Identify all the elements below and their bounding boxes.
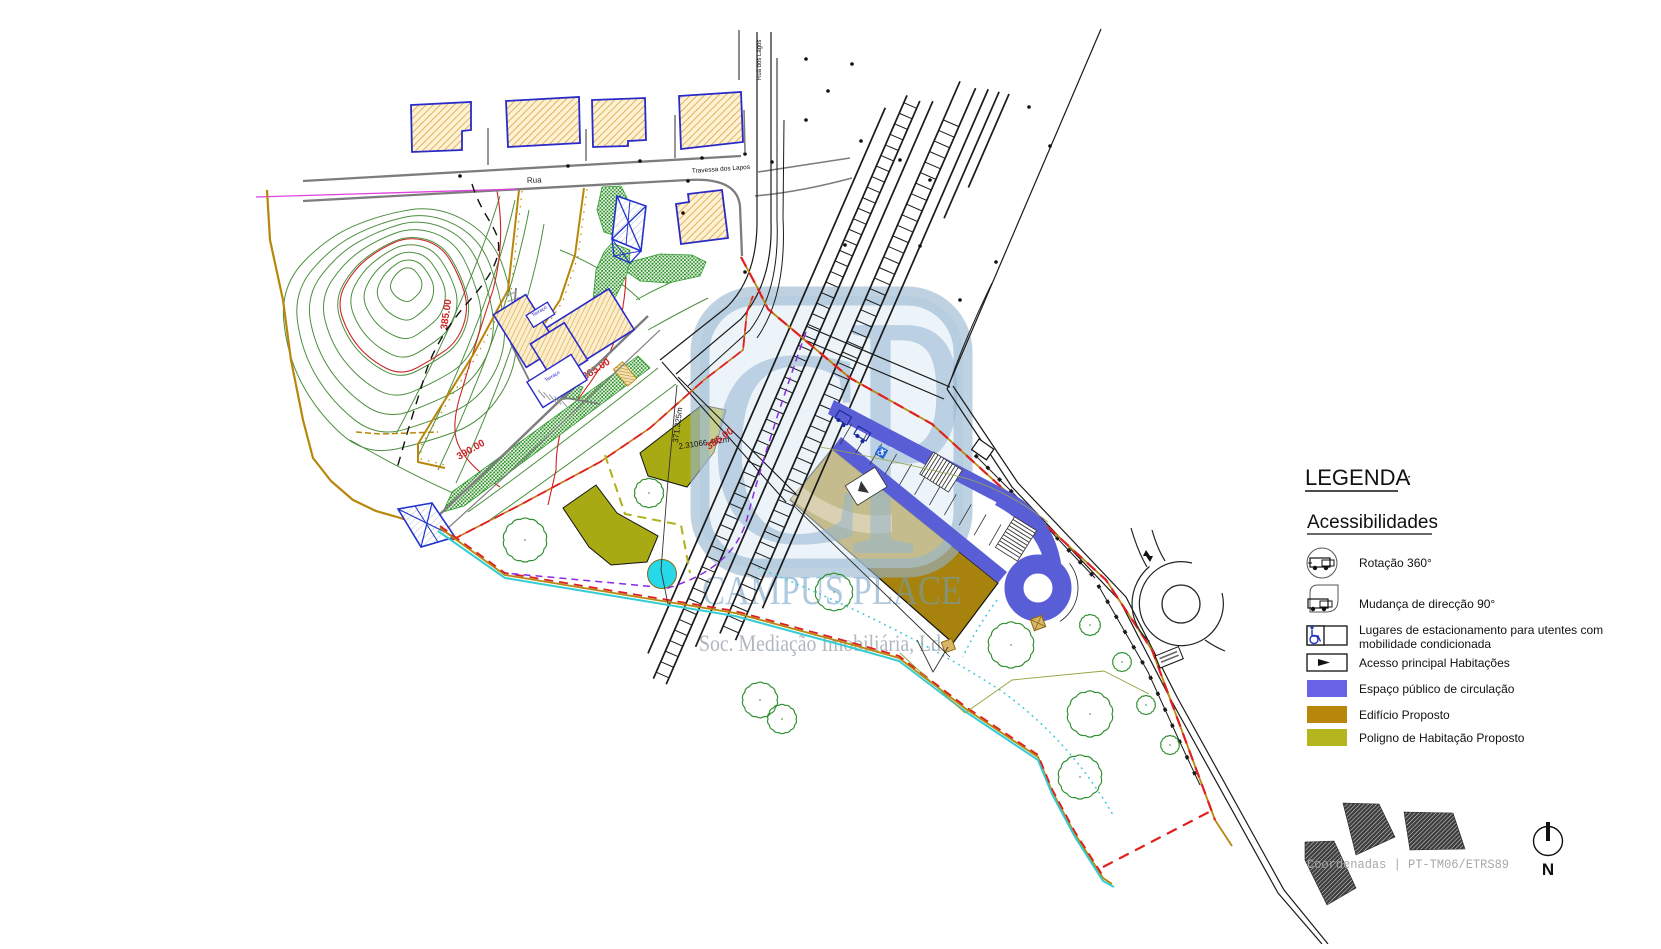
svg-text::: : <box>1407 471 1411 488</box>
svg-text:Rotação 360°: Rotação 360° <box>1359 556 1432 570</box>
svg-text:Rua dos Lagos: Rua dos Lagos <box>757 40 763 80</box>
svg-text:Edifício Proposto: Edifício Proposto <box>1359 708 1450 722</box>
svg-text:LEGENDA: LEGENDA <box>1305 465 1410 490</box>
svg-text:Coordenadas | PT-TM06/ETRS89: Coordenadas | PT-TM06/ETRS89 <box>1307 857 1509 872</box>
svg-text:Lugares de estacionamento para: Lugares de estacionamento para utentes c… <box>1359 623 1603 637</box>
svg-text:Rua: Rua <box>527 175 543 185</box>
svg-text:Acesso principal Habitações: Acesso principal Habitações <box>1359 656 1510 670</box>
svg-text:mobilidade condicionada: mobilidade condicionada <box>1359 637 1491 651</box>
svg-text:Poligno de Habitação Proposto: Poligno de Habitação Proposto <box>1359 731 1525 745</box>
svg-text:N: N <box>1542 860 1554 879</box>
svg-text:Espaço público de circulação: Espaço público de circulação <box>1359 682 1515 696</box>
svg-text:Acessibilidades: Acessibilidades <box>1307 512 1438 533</box>
svg-text:Soc. Mediação Imobiliária, Ld: Soc. Mediação Imobiliária, Ld <box>699 631 941 656</box>
svg-text:Mudança de direcção 90°: Mudança de direcção 90° <box>1359 597 1495 611</box>
